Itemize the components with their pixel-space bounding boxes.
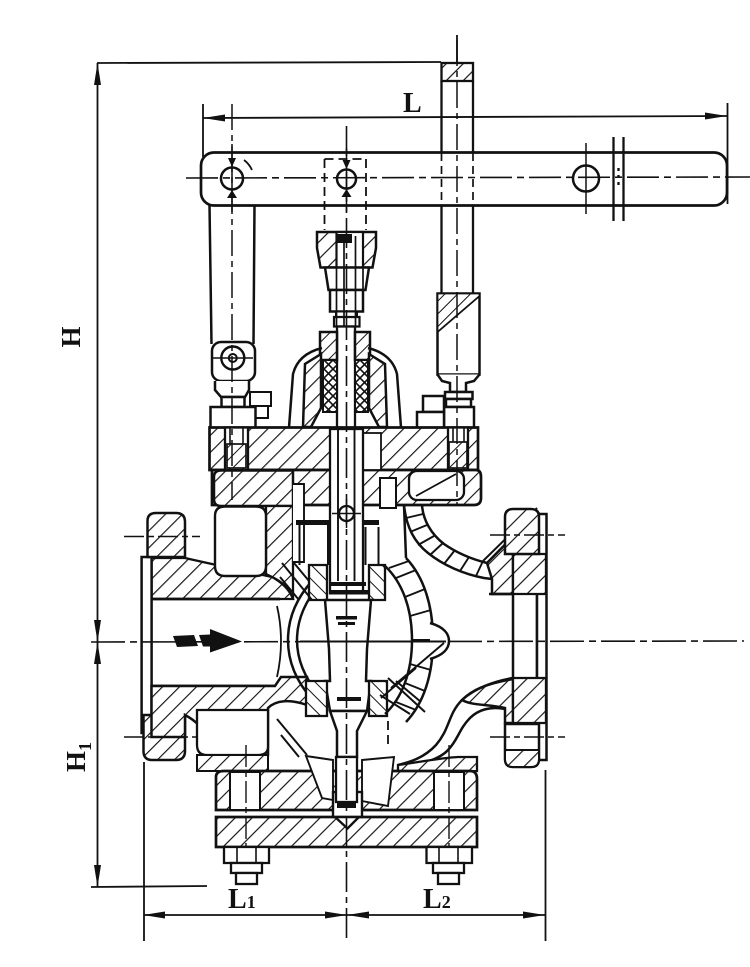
svg-text:L: L	[403, 88, 422, 119]
svg-text:H: H	[56, 326, 86, 347]
